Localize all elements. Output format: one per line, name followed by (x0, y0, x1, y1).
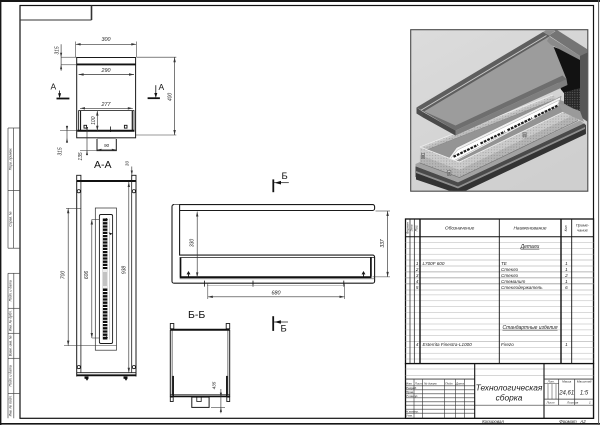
svg-text:Масса: Масса (562, 379, 571, 383)
svg-text:A: A (159, 82, 165, 92)
svg-text:Формат: Формат (559, 419, 577, 424)
svg-text:400: 400 (168, 93, 174, 102)
svg-text:5: 5 (416, 285, 419, 290)
svg-text:1: 1 (565, 342, 568, 347)
svg-text:сборка: сборка (496, 392, 523, 402)
svg-text:Обозначение: Обозначение (445, 226, 475, 232)
svg-text:Инв. № подл.: Инв. № подл. (9, 395, 13, 416)
svg-text:L700F 600: L700F 600 (423, 261, 445, 266)
svg-text:Стеклодержатель: Стеклодержатель (501, 285, 543, 290)
svg-text:Справ. №: Справ. № (9, 211, 13, 227)
svg-text:Дата: Дата (455, 381, 464, 385)
svg-text:№ докум.: № докум. (424, 381, 437, 385)
svg-text:Копировал: Копировал (482, 419, 504, 424)
svg-text:300: 300 (102, 37, 111, 43)
svg-text:30: 30 (124, 161, 129, 167)
svg-text:315: 315 (55, 46, 61, 55)
svg-text:Технологическая: Технологическая (476, 383, 543, 393)
svg-text:А-А: А-А (94, 159, 112, 171)
svg-text:Esterrita Finestra-L1000: Esterrita Finestra-L1000 (423, 342, 473, 347)
svg-text:4: 4 (416, 342, 419, 347)
svg-text:Утв.: Утв. (406, 413, 413, 417)
svg-text:Б-Б: Б-Б (188, 309, 205, 321)
svg-text:Лист: Лист (546, 401, 555, 405)
svg-text:Перв. примен.: Перв. примен. (9, 148, 13, 171)
svg-text:938: 938 (122, 266, 128, 275)
svg-text:Подп. и дата: Подп. и дата (9, 280, 13, 301)
svg-text:90: 90 (104, 143, 110, 148)
svg-text:135: 135 (78, 152, 84, 161)
svg-text:330: 330 (190, 239, 196, 248)
svg-text:24,61: 24,61 (558, 391, 574, 397)
svg-text:Стекло: Стекло (501, 273, 518, 278)
svg-text:Формат: Формат (405, 222, 409, 234)
svg-text:Лист: Лист (414, 381, 423, 385)
svg-text:1: 1 (565, 267, 568, 272)
svg-text:337: 337 (380, 239, 386, 248)
svg-text:Детали: Детали (520, 244, 540, 250)
svg-text:Зона: Зона (410, 224, 414, 231)
svg-text:Подп. и дата: Подп. и дата (9, 365, 13, 386)
svg-text:1: 1 (565, 261, 568, 266)
svg-text:Стемалит: Стемалит (501, 279, 525, 284)
svg-text:Инв. № дубл.: Инв. № дубл. (9, 310, 13, 331)
svg-text:Б: Б (282, 171, 288, 182)
svg-text:290: 290 (101, 68, 111, 74)
svg-text:Наименование: Наименование (513, 226, 546, 232)
svg-text:6: 6 (565, 285, 568, 290)
svg-text:100: 100 (91, 116, 97, 125)
svg-text:277: 277 (101, 102, 112, 108)
svg-text:Кол.: Кол. (564, 225, 568, 232)
svg-text:606: 606 (84, 271, 90, 280)
svg-text:Поз.: Поз. (415, 225, 419, 232)
svg-text:1:5: 1:5 (580, 391, 589, 397)
svg-text:4: 4 (416, 279, 419, 284)
svg-text:1: 1 (565, 279, 568, 284)
svg-text:Б: Б (281, 324, 287, 335)
svg-text:Взам. инв. №: Взам. инв. № (9, 335, 13, 356)
svg-text:А2: А2 (579, 419, 586, 424)
svg-text:Подп.: Подп. (445, 381, 453, 385)
svg-text:Стекло: Стекло (501, 267, 518, 272)
svg-text:Изм.: Изм. (406, 381, 413, 385)
svg-text:Листов: Листов (566, 401, 579, 405)
svg-text:Масштаб: Масштаб (577, 379, 592, 383)
svg-text:700: 700 (61, 271, 67, 280)
svg-text:680: 680 (272, 291, 281, 297)
svg-text:Лит.: Лит. (547, 379, 555, 383)
svg-text:315: 315 (58, 147, 64, 156)
svg-text:2: 2 (564, 273, 568, 278)
svg-text:ТЕ: ТЕ (501, 261, 508, 266)
svg-text:2: 2 (415, 267, 419, 272)
svg-text:Стандартные изделия: Стандартные изделия (502, 325, 557, 331)
svg-text:1: 1 (589, 401, 591, 405)
svg-text:A: A (51, 82, 57, 92)
svg-text:Т.контр.: Т.контр. (406, 394, 418, 398)
svg-text:3: 3 (416, 273, 419, 278)
svg-text:Firezo: Firezo (501, 342, 514, 347)
svg-text:435: 435 (211, 381, 216, 389)
svg-text:чание: чание (577, 228, 588, 233)
svg-text:1: 1 (416, 261, 419, 266)
